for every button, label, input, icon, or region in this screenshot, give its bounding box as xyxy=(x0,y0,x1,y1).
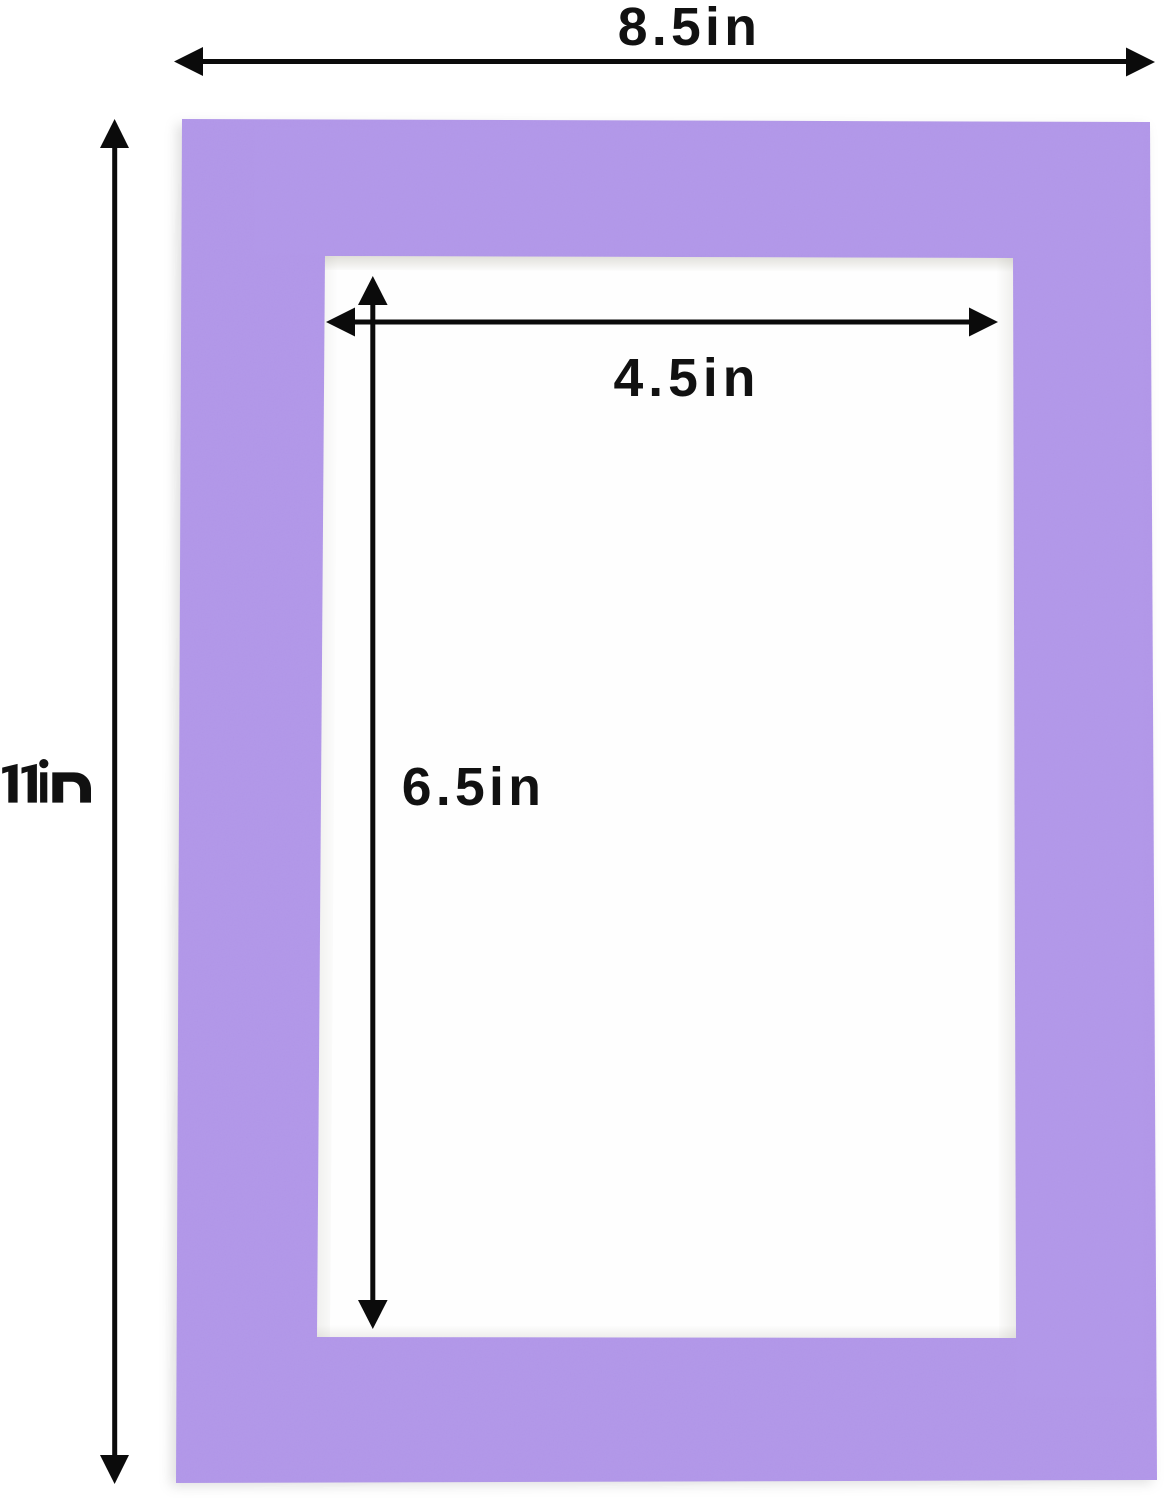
svg-text:6.5in: 6.5in xyxy=(402,758,545,817)
svg-text:8.5in: 8.5in xyxy=(618,0,761,57)
svg-text:4.5in: 4.5in xyxy=(614,349,761,408)
